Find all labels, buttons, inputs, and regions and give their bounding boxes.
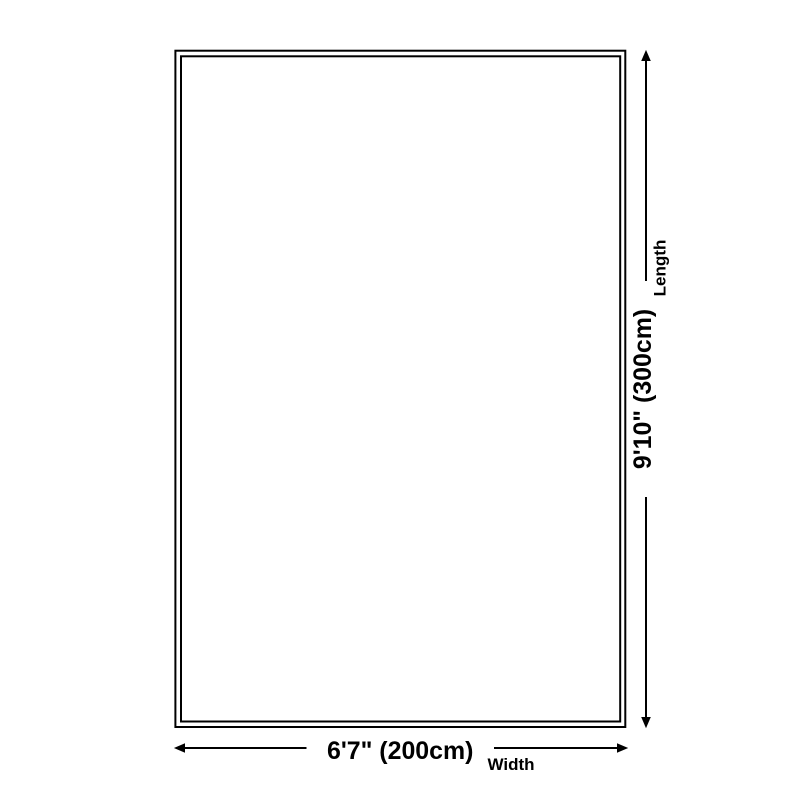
svg-text:9'10" (300cm): 9'10" (300cm) (629, 309, 657, 469)
svg-text:6'7" (200cm): 6'7" (200cm) (327, 737, 473, 765)
svg-text:Width: Width (488, 755, 535, 774)
svg-text:Length: Length (651, 240, 670, 297)
